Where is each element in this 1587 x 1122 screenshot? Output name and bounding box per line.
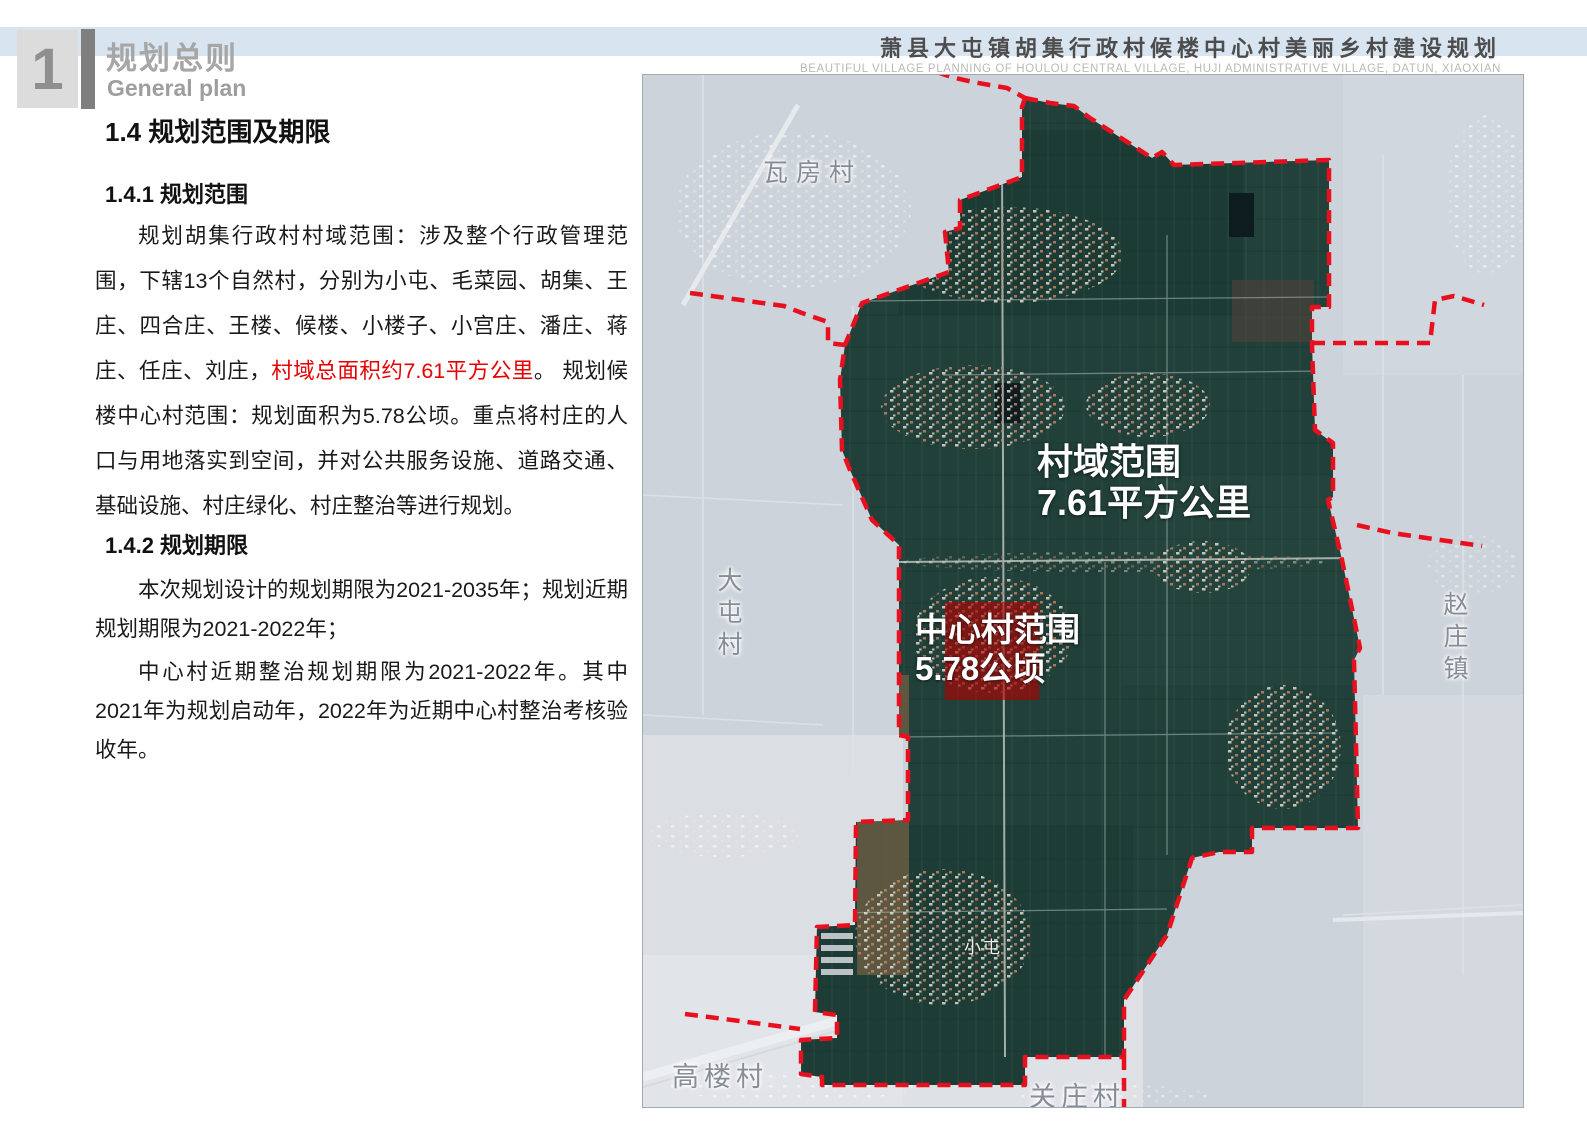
scope-text-red-area: 村域总面积约7.61平方公里 [271,359,534,383]
subsection-scope-title: 1.4.1 规划范围 [105,177,248,209]
scope-paragraph: 规划胡集行政村村域范围：涉及整个行政管理范围，下辖13个自然村，分别为小屯、毛菜… [95,214,628,529]
domain-annotation-line1: 村域范围 [1037,441,1251,482]
center-annotation-line2: 5.78公顷 [915,649,1080,688]
place-label-guanzhuangcun: 关庄村 [1029,1075,1125,1108]
domain-area-annotation: 村域范围 7.61平方公里 [1037,441,1251,523]
domain-annotation-line2: 7.61平方公里 [1037,482,1251,523]
period-paragraph-1: 本次规划设计的规划期限为2021-2035年；规划近期规划期限为2021-202… [95,571,628,649]
satellite-map-canvas [643,75,1523,1107]
chapter-number: 1 [31,36,63,103]
place-label-wafangcun: 瓦房村 [763,153,862,189]
document-title-zh: 萧县大屯镇胡集行政村候楼中心村美丽乡村建设规划 [880,31,1501,63]
chapter-divider-bar [81,29,95,109]
section-title: 1.4 规划范围及期限 [105,112,330,149]
place-label-gaoloucun: 高楼村 [672,1055,768,1094]
chapter-title-en: General plan [107,75,246,102]
place-label-xiaotun: 小屯 [964,933,1002,958]
period-paragraph-2: 中心村近期整治规划期限为2021-2022年。其中2021年为规划启动年，202… [95,653,628,770]
chapter-number-box: 1 [17,30,78,108]
subsection-period-title: 1.4.2 规划期限 [105,528,248,560]
place-label-zhaozhuangzhen: 赵庄镇 [1435,591,1471,687]
center-village-annotation: 中心村范围 5.78公顷 [915,610,1080,688]
satellite-map: 瓦房村 大屯村 赵庄镇 高楼村 关庄村 小屯 村域范围 7.61平方公里 中心村… [642,74,1524,1108]
center-annotation-line1: 中心村范围 [915,610,1080,649]
page: { "header": { "chapter": { "number": "1"… [0,0,1587,1122]
place-label-datuncun: 大屯村 [709,567,745,663]
chapter-title-zh: 规划总则 [106,33,238,78]
